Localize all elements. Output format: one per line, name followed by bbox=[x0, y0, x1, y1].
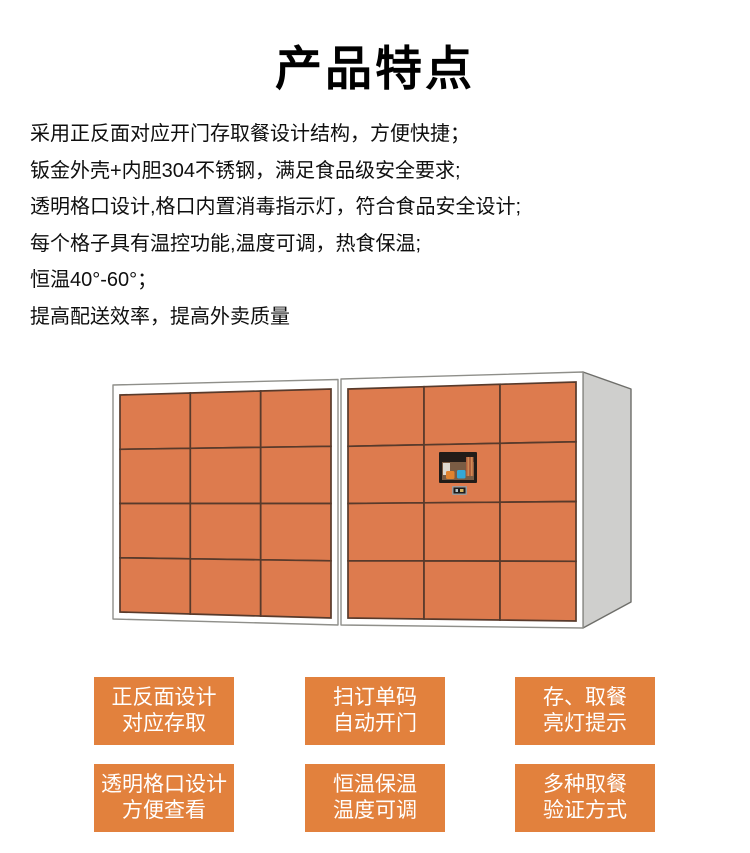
tag-line: 自动开门 bbox=[333, 711, 417, 737]
tag-line: 存、取餐 bbox=[543, 685, 627, 711]
feature-list: 采用正反面对应开门存取餐设计结构，方便快捷； 钣金外壳+内胆304不锈钢，满足食… bbox=[30, 116, 730, 335]
locker-door bbox=[261, 504, 331, 561]
locker-door bbox=[120, 393, 190, 449]
screen-blue-button bbox=[457, 470, 466, 479]
locker-door-grid bbox=[120, 382, 576, 621]
locker-door bbox=[261, 446, 331, 503]
feature-tag-front-back-design: 正反面设计 对应存取 bbox=[94, 677, 234, 745]
locker-door bbox=[424, 384, 500, 445]
screen-stripe-light bbox=[468, 457, 470, 476]
locker-door bbox=[120, 504, 190, 559]
locker-door bbox=[261, 560, 331, 618]
locker-svg bbox=[90, 362, 650, 662]
tag-line: 多种取餐 bbox=[543, 772, 627, 798]
feature-line: 采用正反面对应开门存取餐设计结构，方便快捷； bbox=[30, 116, 730, 153]
locker-side-panel bbox=[583, 372, 631, 628]
tag-line: 透明格口设计 bbox=[101, 772, 227, 798]
locker-door bbox=[348, 503, 424, 561]
scanner-window bbox=[454, 488, 466, 494]
tag-line: 温度可调 bbox=[333, 798, 417, 824]
tag-line: 方便查看 bbox=[122, 798, 206, 824]
locker-door bbox=[348, 387, 424, 447]
locker-door bbox=[190, 559, 260, 616]
scanner-dot bbox=[456, 489, 459, 492]
feature-line: 透明格口设计,格口内置消毒指示灯，符合食品安全设计; bbox=[30, 189, 730, 226]
locker-screen bbox=[439, 452, 477, 483]
feature-tag-scan-code: 扫订单码 自动开门 bbox=[305, 677, 445, 745]
locker-door bbox=[190, 447, 260, 503]
feature-line: 钣金外壳+内胆304不锈钢，满足食品级安全要求; bbox=[30, 153, 730, 190]
locker-door bbox=[500, 442, 576, 502]
page-title: 产品特点 bbox=[0, 30, 750, 99]
tag-line: 正反面设计 bbox=[112, 685, 217, 711]
locker-door bbox=[424, 561, 500, 620]
tag-line: 验证方式 bbox=[543, 798, 627, 824]
feature-line: 每个格子具有温控功能,温度可调，热食保温; bbox=[30, 226, 730, 263]
feature-tag-light-indicator: 存、取餐 亮灯提示 bbox=[515, 677, 655, 745]
locker-door bbox=[190, 391, 260, 448]
locker-illustration bbox=[90, 362, 650, 662]
feature-tag-verification: 多种取餐 验证方式 bbox=[515, 764, 655, 832]
locker-door bbox=[348, 561, 424, 619]
feature-tag-transparent-door: 透明格口设计 方便查看 bbox=[94, 764, 234, 832]
locker-scanner bbox=[452, 486, 467, 495]
feature-line: 恒温40°-60°； bbox=[30, 262, 730, 299]
tag-line: 扫订单码 bbox=[333, 685, 417, 711]
locker-door bbox=[500, 502, 576, 562]
feature-tag-temperature: 恒温保温 温度可调 bbox=[305, 764, 445, 832]
locker-door bbox=[500, 382, 576, 443]
locker-door bbox=[424, 502, 500, 561]
locker-door bbox=[500, 561, 576, 621]
screen-stripe-light bbox=[471, 457, 473, 476]
feature-line: 提高配送效率，提高外卖质量 bbox=[30, 299, 730, 336]
screen-orange-button bbox=[446, 471, 455, 479]
tag-line: 恒温保温 bbox=[333, 772, 417, 798]
locker-door bbox=[190, 504, 260, 560]
locker-door bbox=[261, 389, 331, 447]
locker-door bbox=[120, 558, 190, 614]
locker-door bbox=[120, 448, 190, 503]
locker-door bbox=[348, 445, 424, 504]
tag-line: 对应存取 bbox=[122, 711, 206, 737]
tag-line: 亮灯提示 bbox=[543, 711, 627, 737]
scanner-dot bbox=[460, 489, 464, 492]
